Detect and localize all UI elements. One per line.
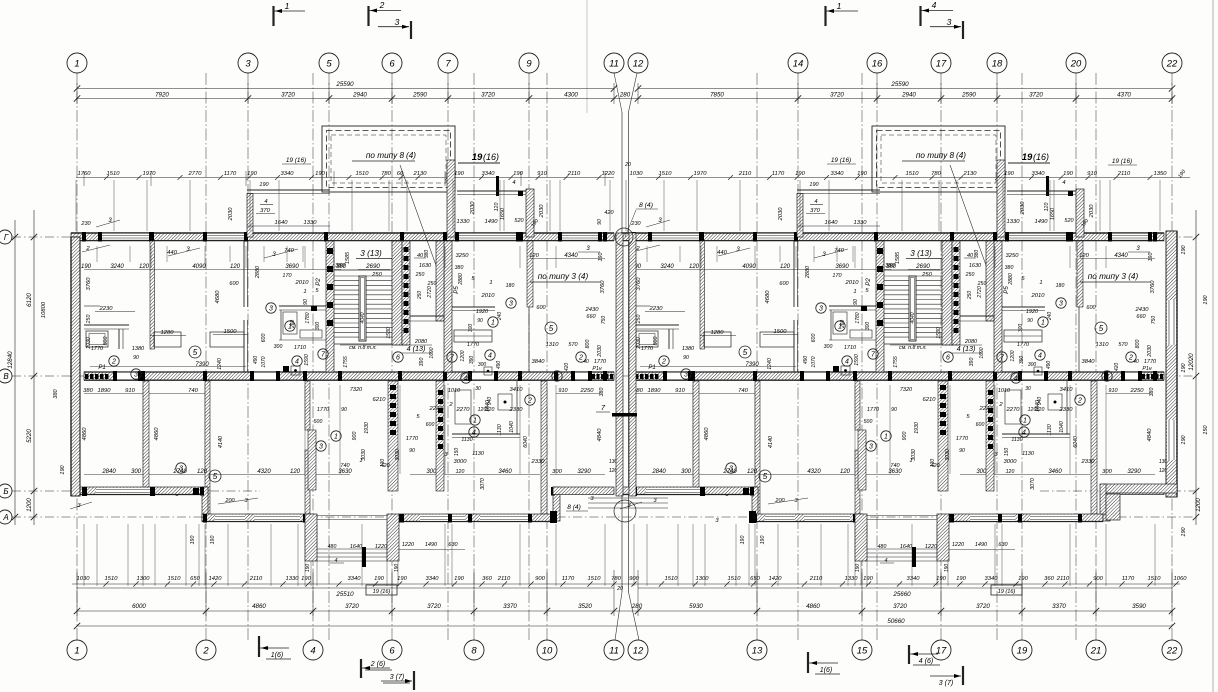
svg-text:13: 13 [752, 646, 763, 657]
svg-text:500: 500 [864, 419, 873, 425]
svg-text:1510: 1510 [105, 576, 119, 582]
svg-text:25660: 25660 [892, 591, 911, 598]
svg-text:1010: 1010 [448, 388, 461, 394]
svg-text:360: 360 [482, 576, 492, 582]
svg-text:120: 120 [1044, 203, 1050, 212]
svg-text:120: 120 [197, 469, 208, 475]
svg-text:4840: 4840 [1147, 428, 1153, 442]
svg-text:1490: 1490 [1035, 219, 1049, 225]
svg-text:3: 3 [555, 374, 559, 381]
svg-text:1770: 1770 [467, 342, 480, 348]
svg-text:2 (6): 2 (6) [370, 661, 385, 668]
svg-text:1240: 1240 [217, 358, 223, 370]
svg-text:300: 300 [131, 469, 142, 475]
svg-text:2110: 2110 [738, 171, 752, 177]
svg-text:4370: 4370 [1117, 92, 1131, 99]
svg-text:1490: 1490 [425, 542, 438, 548]
svg-text:4090: 4090 [192, 264, 206, 270]
svg-text:90: 90 [853, 299, 859, 305]
svg-text:660: 660 [1136, 314, 1146, 320]
svg-text:3340: 3340 [281, 171, 295, 177]
svg-text:190: 190 [1203, 294, 1209, 304]
svg-text:380: 380 [599, 388, 605, 397]
svg-text:120: 120 [494, 203, 500, 212]
svg-text:750: 750 [1151, 316, 1157, 325]
svg-text:3410: 3410 [510, 387, 524, 393]
svg-text:190: 190 [454, 576, 464, 582]
svg-text:490: 490 [253, 356, 259, 365]
svg-text:4040: 4040 [910, 312, 916, 323]
svg-text:4090: 4090 [742, 264, 756, 270]
svg-text:3340: 3340 [831, 171, 845, 177]
svg-text:1330: 1330 [457, 219, 471, 225]
svg-text:600: 600 [811, 334, 817, 343]
svg-text:490: 490 [1046, 361, 1052, 370]
svg-text:250: 250 [965, 272, 975, 278]
svg-text:1330: 1330 [286, 576, 300, 582]
svg-text:15: 15 [857, 646, 868, 657]
svg-text:170: 170 [832, 273, 842, 279]
svg-text:19 (16): 19 (16) [286, 157, 306, 164]
svg-text:1: 1 [303, 289, 306, 295]
svg-text:3690: 3690 [835, 264, 849, 270]
svg-text:2030: 2030 [470, 201, 476, 216]
svg-text:1770: 1770 [1144, 359, 1157, 365]
svg-text:190: 190 [397, 576, 407, 582]
svg-text:4860: 4860 [252, 603, 266, 610]
svg-text:190: 190 [374, 576, 384, 582]
svg-text:380: 380 [1005, 265, 1014, 271]
svg-text:740: 740 [284, 248, 294, 254]
svg-text:2230: 2230 [649, 306, 664, 312]
svg-text:2940: 2940 [352, 92, 367, 99]
svg-text:380: 380 [974, 250, 980, 259]
svg-text:480: 480 [878, 544, 887, 550]
svg-text:5930: 5930 [689, 603, 703, 610]
svg-text:4320: 4320 [807, 469, 821, 475]
svg-text:3290: 3290 [1127, 469, 1141, 475]
svg-text:4860: 4860 [704, 427, 710, 441]
svg-text:20: 20 [1070, 59, 1082, 70]
svg-text:1890: 1890 [98, 388, 112, 394]
svg-text:Р5: Р5 [1003, 286, 1010, 294]
svg-text:1500: 1500 [224, 329, 238, 335]
svg-text:4140: 4140 [768, 435, 774, 448]
svg-text:2110: 2110 [1117, 171, 1131, 177]
svg-text:1755: 1755 [893, 356, 899, 368]
svg-text:2110: 2110 [567, 171, 581, 177]
svg-text:190: 190 [259, 182, 269, 188]
svg-text:250: 250 [86, 315, 92, 325]
svg-text:3030: 3030 [945, 449, 951, 461]
svg-text:180: 180 [506, 283, 515, 289]
svg-text:280: 280 [631, 603, 643, 610]
svg-text:4860: 4860 [806, 603, 820, 610]
svg-text:190: 190 [944, 564, 950, 573]
svg-text:300: 300 [552, 469, 562, 475]
svg-text:3760: 3760 [600, 280, 606, 294]
svg-text:1770: 1770 [406, 436, 419, 442]
svg-text:900: 900 [902, 432, 908, 441]
svg-text:1585: 1585 [895, 251, 901, 264]
svg-text:90: 90 [303, 299, 309, 305]
svg-text:3340: 3340 [348, 576, 362, 582]
svg-text:190: 190 [301, 576, 311, 582]
svg-text:900: 900 [352, 432, 358, 441]
svg-text:1200: 1200 [1010, 350, 1016, 361]
svg-text:1: 1 [285, 1, 290, 11]
svg-text:1770: 1770 [1017, 342, 1030, 348]
svg-text:740: 740 [340, 463, 350, 469]
svg-text:3340: 3340 [482, 171, 496, 177]
svg-text:7320: 7320 [350, 387, 363, 393]
svg-text:25590: 25590 [335, 81, 354, 88]
svg-text:2: 2 [202, 646, 209, 657]
svg-text:по типу 3 (4): по типу 3 (4) [1088, 272, 1139, 281]
svg-text:3720: 3720 [1029, 92, 1043, 99]
svg-text:120: 120 [486, 407, 495, 413]
svg-text:910: 910 [675, 388, 685, 394]
svg-text:480: 480 [328, 544, 337, 550]
svg-text:12: 12 [633, 59, 644, 70]
svg-text:190: 190 [394, 564, 400, 573]
svg-text:19: 19 [472, 152, 483, 163]
svg-text:1970: 1970 [694, 171, 708, 177]
svg-text:600: 600 [536, 305, 546, 311]
svg-text:3240: 3240 [110, 264, 124, 270]
svg-text:370: 370 [260, 208, 270, 214]
svg-text:1510: 1510 [665, 576, 679, 582]
svg-text:150: 150 [1203, 424, 1209, 434]
svg-text:1300: 1300 [137, 576, 151, 582]
svg-text:120: 120 [230, 264, 241, 270]
svg-text:1310: 1310 [1096, 342, 1110, 348]
svg-text:6000: 6000 [132, 603, 146, 610]
svg-text:6: 6 [946, 355, 950, 362]
svg-text:17: 17 [936, 59, 947, 70]
svg-text:1220: 1220 [925, 544, 938, 550]
svg-text:2430: 2430 [585, 307, 600, 313]
svg-text:2010: 2010 [295, 280, 310, 286]
svg-text:4: 4 [310, 646, 315, 657]
svg-text:300: 300 [468, 324, 474, 333]
svg-text:1500: 1500 [774, 329, 788, 335]
svg-text:2270: 2270 [1006, 407, 1021, 413]
svg-text:120: 120 [689, 264, 700, 270]
svg-text:750: 750 [601, 316, 607, 325]
svg-text:2690: 2690 [365, 263, 380, 270]
svg-text:4: 4 [472, 430, 476, 437]
svg-text:4340: 4340 [1114, 253, 1128, 259]
svg-text:4: 4 [845, 359, 849, 366]
svg-text:250: 250 [415, 272, 425, 278]
svg-text:120: 120 [747, 469, 758, 475]
svg-text:2030: 2030 [1020, 201, 1026, 216]
svg-text:40: 40 [1133, 359, 1139, 365]
svg-text:90: 90 [891, 407, 897, 413]
svg-text:17: 17 [936, 646, 947, 657]
svg-text:30: 30 [475, 386, 481, 392]
svg-text:2010: 2010 [1031, 293, 1046, 299]
svg-text:380: 380 [53, 388, 59, 398]
svg-text:910: 910 [537, 171, 547, 177]
svg-text:12840: 12840 [7, 351, 14, 369]
svg-text:360: 360 [1044, 576, 1054, 582]
svg-text:8 (4): 8 (4) [567, 504, 581, 511]
svg-text:3720: 3720 [281, 92, 295, 99]
svg-text:4840: 4840 [597, 428, 603, 442]
svg-text:420: 420 [1114, 363, 1120, 372]
svg-text:1490: 1490 [975, 542, 988, 548]
svg-text:1: 1 [288, 324, 292, 331]
svg-text:1130: 1130 [1011, 437, 1022, 443]
svg-text:4680: 4680 [765, 290, 771, 304]
svg-text:8: 8 [471, 646, 477, 657]
svg-text:780: 780 [931, 171, 941, 177]
svg-text:3460: 3460 [498, 469, 512, 475]
svg-text:2880: 2880 [458, 273, 464, 286]
svg-text:19: 19 [1022, 152, 1033, 163]
svg-text:1585: 1585 [345, 251, 351, 264]
svg-text:см. п.8 т.л.: см. п.8 т.л. [349, 345, 377, 351]
svg-text:420: 420 [564, 363, 570, 372]
svg-text:2940: 2940 [901, 92, 916, 99]
svg-text:1330: 1330 [304, 220, 318, 226]
svg-text:3630: 3630 [888, 469, 902, 475]
svg-text:200: 200 [774, 498, 785, 504]
svg-text:6040: 6040 [1073, 436, 1079, 448]
svg-text:25590: 25590 [890, 81, 909, 88]
svg-text:25510: 25510 [335, 591, 354, 598]
svg-text:250: 250 [967, 291, 973, 301]
svg-text:1330: 1330 [854, 220, 868, 226]
svg-text:14: 14 [793, 59, 804, 70]
svg-text:В: В [3, 372, 9, 381]
svg-text:2130: 2130 [963, 171, 978, 177]
svg-text:3340: 3340 [985, 576, 999, 582]
svg-text:2: 2 [111, 359, 116, 366]
svg-text:390: 390 [1019, 356, 1025, 365]
svg-text:800: 800 [1135, 340, 1141, 349]
svg-text:1280: 1280 [711, 330, 725, 336]
svg-text:910: 910 [558, 388, 568, 394]
svg-text:3720: 3720 [893, 603, 907, 610]
svg-text:190: 190 [863, 576, 873, 582]
svg-text:1200: 1200 [460, 350, 466, 361]
svg-text:3 (7): 3 (7) [939, 680, 953, 687]
svg-text:3: 3 [269, 306, 273, 313]
svg-text:660: 660 [586, 314, 596, 320]
svg-text:по типу 8: по типу 8 [916, 151, 955, 160]
svg-text:3340: 3340 [426, 576, 440, 582]
svg-text:380: 380 [455, 265, 464, 271]
svg-text:1060: 1060 [1174, 576, 1188, 582]
svg-text:3 (13): 3 (13) [360, 249, 382, 258]
svg-text:3720: 3720 [427, 603, 441, 610]
svg-text:1(6): 1(6) [271, 652, 283, 659]
svg-text:2110: 2110 [249, 576, 263, 582]
svg-text:21: 21 [1090, 646, 1102, 657]
svg-text:30: 30 [1025, 386, 1031, 392]
svg-text:1170: 1170 [224, 171, 237, 177]
svg-text:190: 190 [1018, 576, 1028, 582]
svg-text:90: 90 [959, 448, 965, 454]
svg-text:3760: 3760 [636, 277, 642, 291]
svg-text:3590: 3590 [1132, 603, 1146, 610]
svg-text:1: 1 [838, 324, 842, 331]
svg-text:5: 5 [193, 348, 198, 357]
svg-text:120: 120 [780, 264, 791, 270]
svg-text:3: 3 [819, 306, 823, 313]
svg-text:4: 4 [295, 359, 299, 366]
svg-text:120: 120 [1079, 253, 1089, 259]
svg-text:300: 300 [1018, 324, 1024, 333]
svg-text:570: 570 [568, 342, 578, 348]
svg-text:900: 900 [535, 576, 545, 582]
svg-text:190: 190 [598, 253, 604, 262]
svg-text:по типу 3 (4): по типу 3 (4) [538, 272, 589, 281]
svg-text:Р1н: Р1н [592, 366, 601, 372]
svg-text:1130: 1130 [1022, 451, 1035, 457]
svg-text:800: 800 [585, 340, 591, 349]
svg-text:90: 90 [683, 355, 689, 361]
svg-text:19 (16): 19 (16) [998, 589, 1016, 595]
svg-text:1510: 1510 [356, 171, 370, 177]
svg-text:1690: 1690 [979, 347, 985, 358]
svg-text:1890: 1890 [648, 388, 662, 394]
svg-text:1590: 1590 [854, 354, 860, 366]
svg-text:1: 1 [1041, 320, 1045, 327]
svg-text:190: 190 [81, 264, 92, 270]
svg-text:3: 3 [509, 301, 513, 308]
svg-text:6040: 6040 [523, 436, 529, 448]
svg-text:18: 18 [992, 59, 1003, 70]
svg-text:1130: 1130 [461, 437, 472, 443]
svg-text:(4): (4) [956, 151, 966, 160]
svg-text:300: 300 [865, 322, 871, 331]
svg-text:Р5: Р5 [453, 286, 460, 294]
svg-text:3460: 3460 [1048, 469, 1062, 475]
svg-text:1040: 1040 [1059, 421, 1065, 433]
svg-text:3410: 3410 [1060, 387, 1074, 393]
svg-text:4300: 4300 [564, 92, 578, 99]
svg-text:см. п.8 т.л.: см. п.8 т.л. [899, 345, 927, 351]
svg-text:5: 5 [1099, 324, 1104, 333]
svg-text:2: 2 [1077, 398, 1082, 405]
svg-text:1330: 1330 [845, 576, 859, 582]
svg-text:300: 300 [824, 344, 833, 350]
svg-text:170: 170 [282, 273, 292, 279]
svg-text:230: 230 [80, 221, 91, 227]
svg-text:2010: 2010 [481, 293, 496, 299]
svg-text:Б: Б [3, 487, 8, 496]
svg-text:1920: 1920 [1026, 309, 1039, 315]
svg-text:по типу 8: по типу 8 [366, 151, 405, 160]
svg-text:1650: 1650 [1050, 207, 1056, 220]
svg-text:3720: 3720 [830, 92, 844, 99]
svg-text:380: 380 [1149, 388, 1155, 397]
svg-text:2770: 2770 [188, 171, 203, 177]
svg-text:3: 3 [179, 466, 183, 473]
svg-text:1: 1 [1039, 280, 1042, 286]
svg-text:1510: 1510 [906, 171, 920, 177]
svg-text:3 (7): 3 (7) [390, 674, 404, 681]
svg-text:1: 1 [473, 418, 477, 425]
svg-text:120: 120 [529, 253, 539, 259]
svg-text:2030: 2030 [597, 345, 603, 358]
svg-text:190: 190 [1181, 362, 1187, 372]
svg-text:90: 90 [133, 355, 139, 361]
svg-text:370: 370 [810, 208, 820, 214]
svg-text:2430: 2430 [1135, 307, 1150, 313]
svg-text:4: 4 [932, 0, 937, 10]
svg-text:520: 520 [1064, 218, 1074, 224]
svg-text:6210: 6210 [373, 397, 387, 403]
svg-text:90: 90 [597, 219, 603, 225]
svg-text:630: 630 [448, 542, 458, 548]
svg-text:3840: 3840 [532, 359, 546, 365]
svg-text:190: 190 [190, 536, 196, 545]
svg-text:2840: 2840 [101, 469, 116, 475]
svg-text:2840: 2840 [651, 469, 666, 475]
svg-text:(16): (16) [1033, 152, 1049, 162]
svg-text:190: 190 [740, 536, 746, 545]
svg-text:7920: 7920 [155, 92, 169, 99]
svg-text:3: 3 [319, 444, 323, 451]
svg-text:22: 22 [1166, 646, 1178, 657]
svg-text:2030: 2030 [1147, 345, 1153, 358]
svg-text:12: 12 [633, 646, 644, 657]
svg-text:4 (13): 4 (13) [407, 344, 426, 353]
svg-text:4340: 4340 [564, 253, 578, 259]
svg-text:Р1: Р1 [648, 365, 655, 371]
svg-text:1: 1 [884, 434, 888, 441]
svg-text:11: 11 [609, 59, 619, 70]
svg-text:1: 1 [334, 434, 338, 441]
svg-text:190: 190 [795, 171, 805, 177]
svg-text:1220: 1220 [602, 171, 616, 177]
svg-text:1170: 1170 [772, 171, 785, 177]
svg-text:1770: 1770 [91, 346, 104, 352]
svg-text:2: 2 [661, 359, 666, 366]
svg-text:4 (6): 4 (6) [919, 658, 933, 665]
svg-text:Р2: Р2 [315, 278, 322, 286]
svg-text:570: 570 [1118, 342, 1128, 348]
svg-text:250: 250 [417, 291, 423, 301]
svg-text:4320: 4320 [257, 469, 271, 475]
svg-text:3370: 3370 [503, 603, 517, 610]
svg-text:120: 120 [290, 469, 301, 475]
svg-text:190: 190 [1063, 171, 1073, 177]
svg-text:190: 190 [1004, 171, 1014, 177]
svg-text:1: 1 [491, 320, 495, 327]
svg-text:2590: 2590 [412, 92, 427, 99]
svg-text:1310: 1310 [546, 342, 560, 348]
svg-text:20: 20 [616, 586, 623, 592]
svg-text:2: 2 [527, 398, 532, 405]
svg-text:4: 4 [1038, 353, 1042, 360]
svg-text:190: 190 [315, 171, 325, 177]
svg-text:3340: 3340 [907, 576, 921, 582]
svg-text:1030: 1030 [630, 171, 644, 177]
svg-text:910: 910 [125, 388, 135, 394]
svg-text:10800: 10800 [41, 301, 47, 318]
svg-text:2270: 2270 [429, 406, 444, 412]
svg-text:1710: 1710 [844, 345, 857, 351]
svg-text:420: 420 [604, 210, 614, 216]
svg-text:3240: 3240 [660, 264, 674, 270]
svg-text:190: 190 [247, 171, 257, 177]
